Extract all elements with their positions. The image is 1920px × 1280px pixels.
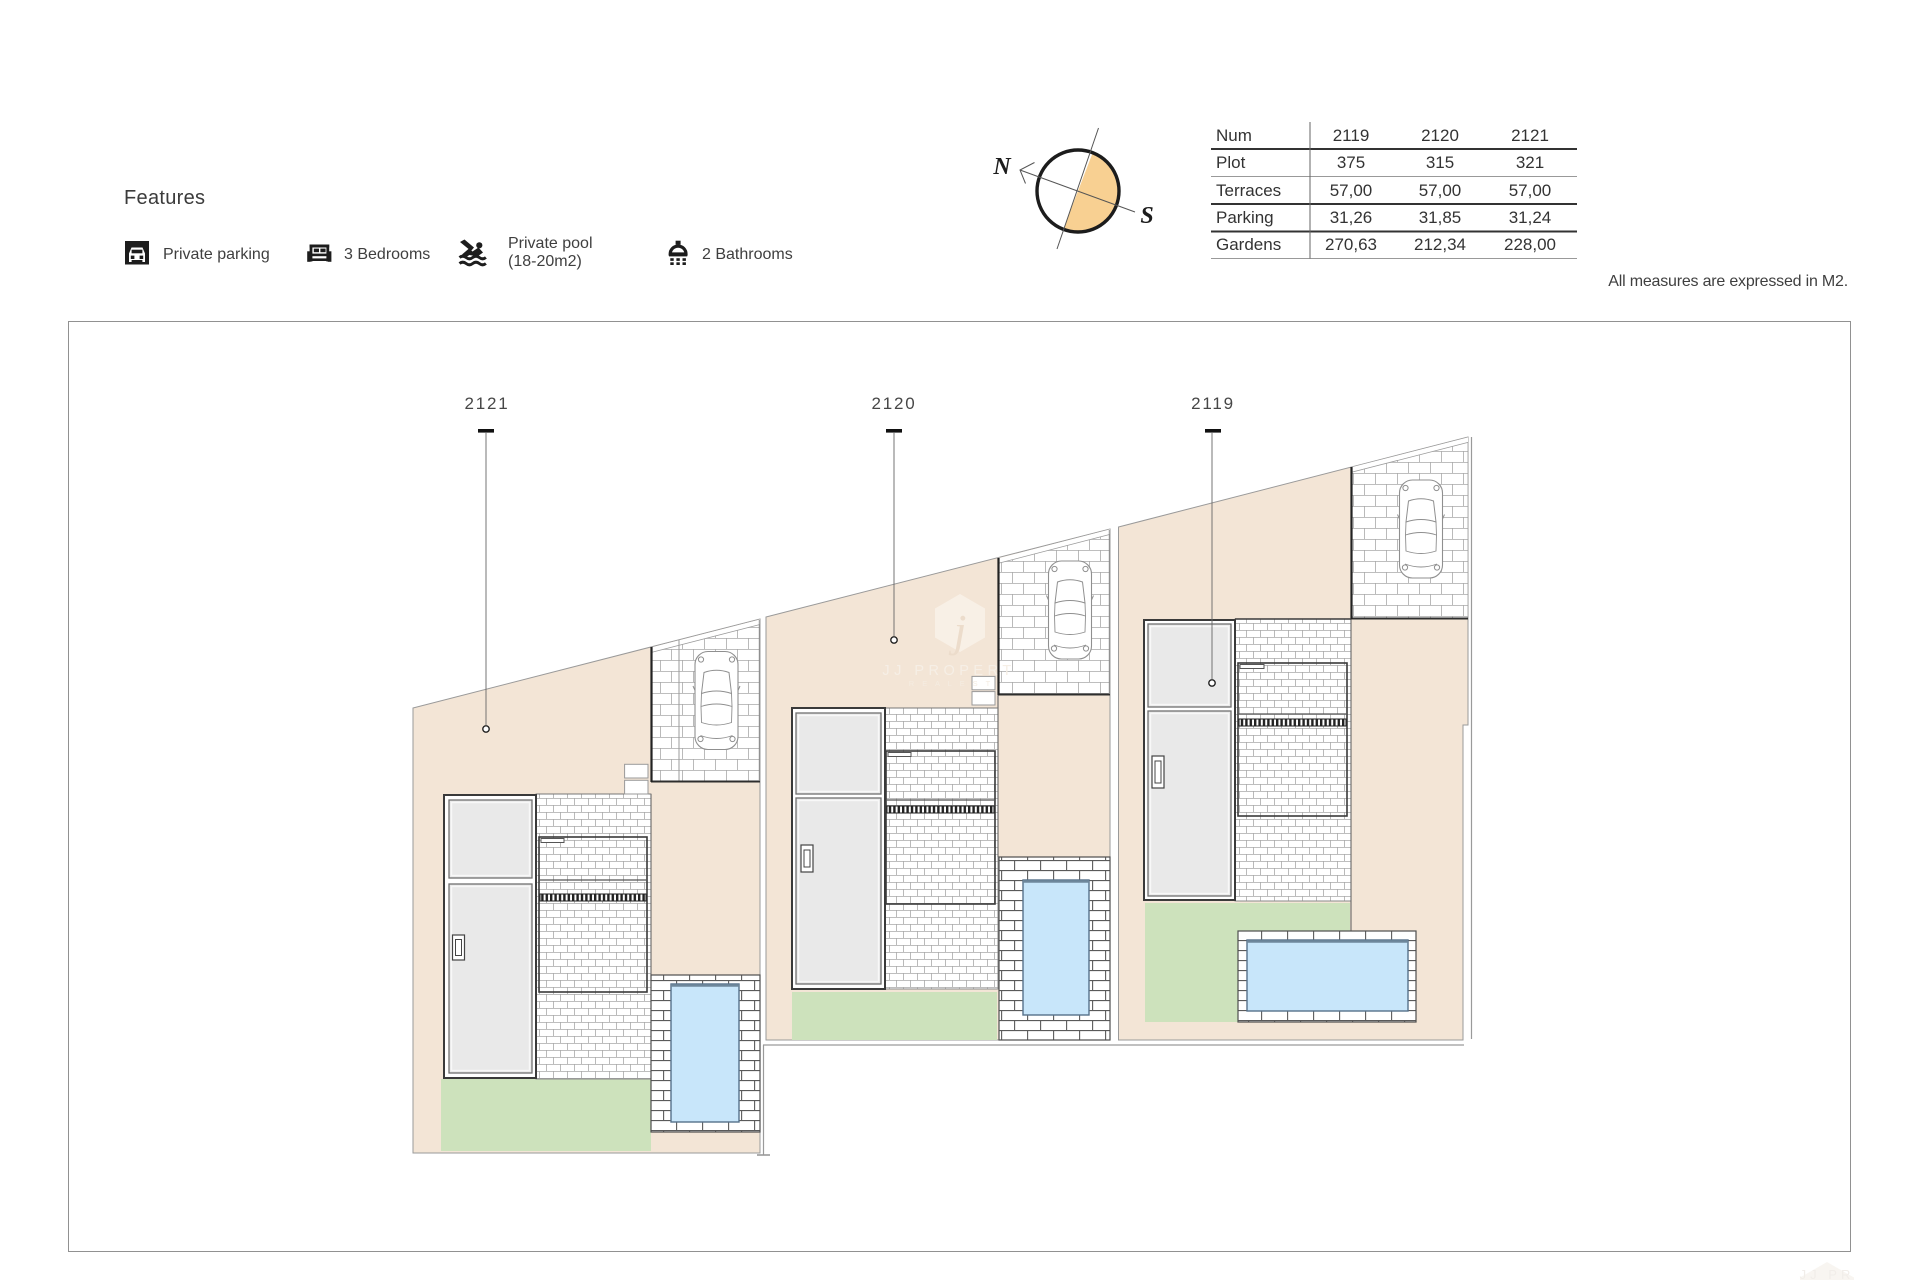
svg-text:R E A L E S T: R E A L E S T xyxy=(909,679,993,688)
svg-text:JJ PR: JJ PR xyxy=(1800,1267,1855,1280)
svg-text:2119: 2119 xyxy=(1191,394,1235,413)
svg-text:2121: 2121 xyxy=(464,394,509,413)
svg-text:2120: 2120 xyxy=(871,394,916,413)
svg-text:JJ PROPERT: JJ PROPERT xyxy=(882,663,1015,679)
